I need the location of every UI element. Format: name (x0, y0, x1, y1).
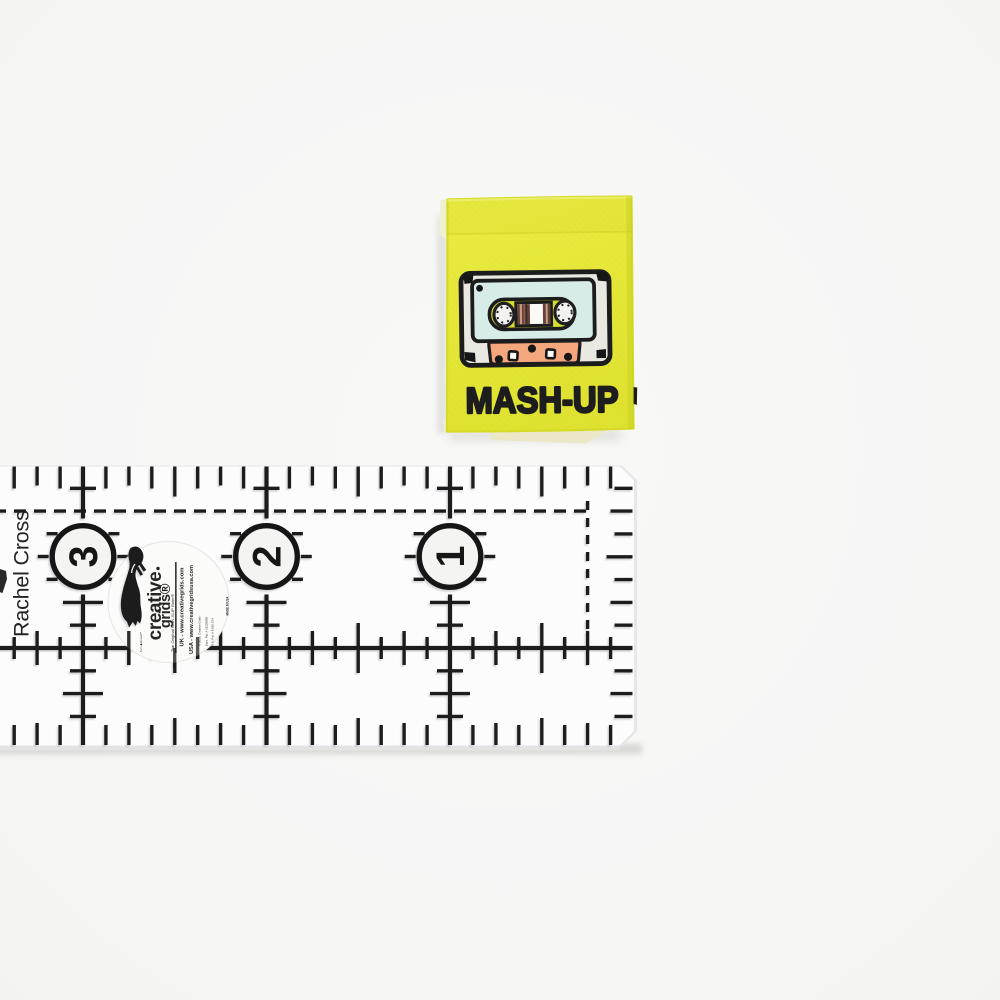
svg-text:The Original NON-SLIP Ruler®: The Original NON-SLIP Ruler® (170, 594, 175, 652)
svg-text:Euro. Pat. # 13228098: Euro. Pat. # 13228098 (205, 617, 209, 646)
svg-text:Rachel Cross: Rachel Cross (10, 510, 34, 637)
svg-text:U.S. Pat. # 8,925,724: U.S. Pat. # 8,925,724 (211, 618, 215, 646)
svg-text:2: 2 (246, 546, 290, 568)
svg-text:1: 1 (429, 546, 473, 568)
svg-text:3: 3 (62, 546, 106, 568)
svg-text:MASH-UP: MASH-UP (465, 379, 618, 421)
svg-text:MADE IN USA: MADE IN USA (226, 596, 230, 615)
svg-text:Turn ◆ Round™: Turn ◆ Round™ (139, 631, 143, 652)
svg-text:UK - www.creativegrids.com: UK - www.creativegrids.com (179, 568, 185, 647)
svg-text:USA - www.creativegridsusa.com: USA - www.creativegridsusa.com (189, 565, 195, 654)
